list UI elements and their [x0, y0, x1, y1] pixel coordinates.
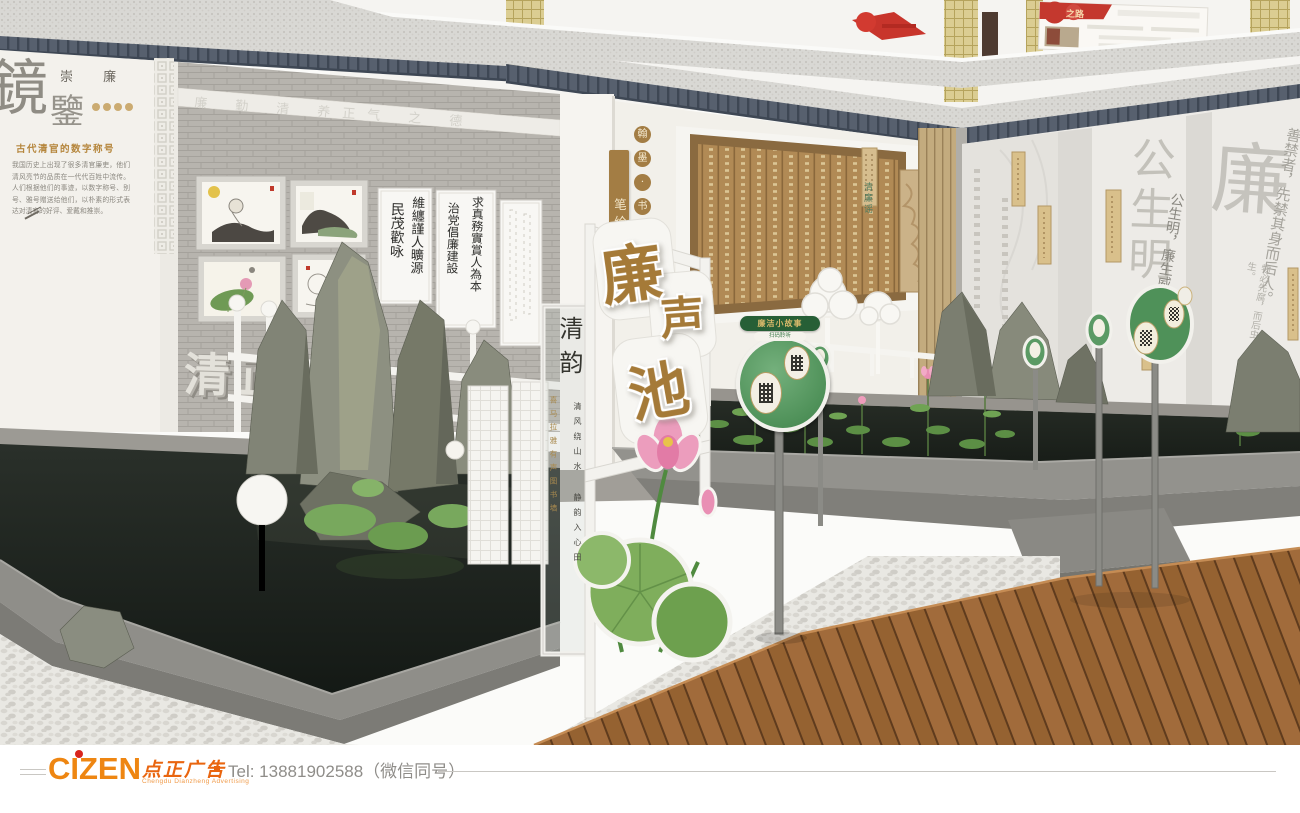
- company-logo: CIZEN: [48, 753, 148, 787]
- qr-code-oval: [750, 372, 782, 414]
- logo-dot: [75, 750, 83, 758]
- pond-sign-char-sheng: 声: [658, 281, 706, 348]
- moss-reflection: [336, 553, 464, 579]
- footer-bullet: [214, 766, 220, 772]
- exhibition-hall-render: 鏡 鑒 崇 廉 古代清官的数字称号 我国历史上出现了很多清官廉吏，他们清风亮节的…: [0, 0, 1300, 745]
- pond-sign-char-lian: 廉: [594, 220, 668, 318]
- glass-panel-title: 清韵: [552, 316, 587, 396]
- lotus-leaf-panel: [736, 336, 830, 432]
- design-rendering-page: 鏡 鑒 崇 廉 古代清官的数字称号 我国历史上出现了很多清官廉吏，他们清风亮节的…: [0, 0, 1300, 813]
- footer-telephone: Tel: 13881902588（微信同号）: [228, 757, 465, 782]
- logo-text: CIZEN: [48, 751, 141, 786]
- white-lotus-sculpture: [446, 441, 464, 459]
- glass-black-column: 清风绕山水 静韵入心田: [572, 402, 583, 650]
- footer-right-rule: [438, 771, 1276, 772]
- qr-sign-banner: 廉洁小故事: [740, 316, 820, 331]
- footer-brand-bar: CIZEN 点正广告 Chengdu Dianzheng Advertising…: [0, 745, 1300, 813]
- glass-gold-column: 喜马拉雅有声图书墙: [548, 396, 559, 632]
- round-sign: [237, 475, 287, 525]
- qr-leaf-sign: 廉洁小故事 扫码聆听: [734, 316, 830, 446]
- footer-left-rule: [20, 769, 46, 775]
- lattice-screens: [468, 382, 548, 564]
- qr-sign-subtitle: 扫码聆听: [754, 332, 806, 341]
- qr-code-oval: [784, 346, 810, 380]
